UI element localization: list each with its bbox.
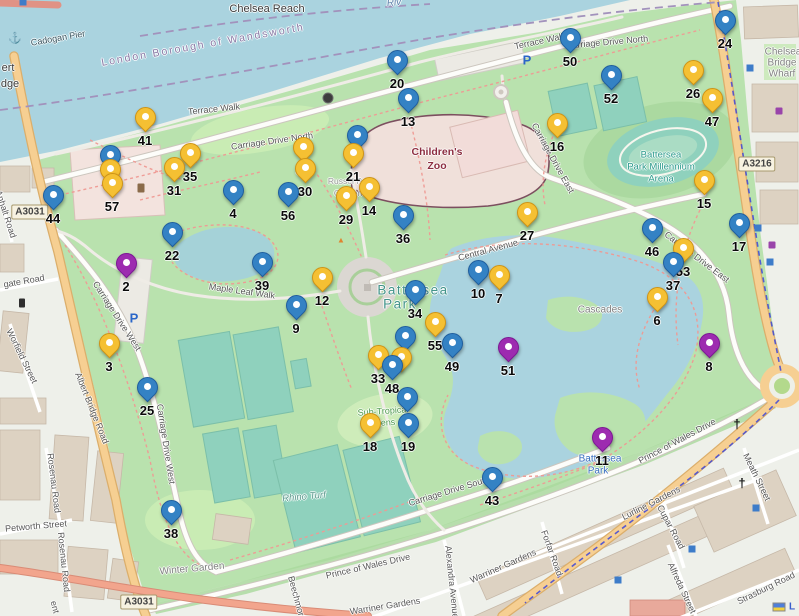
marker-number: 39 xyxy=(255,278,269,293)
marker-number: 34 xyxy=(408,306,422,321)
pin-dot xyxy=(142,113,149,120)
pin-dot xyxy=(449,339,456,346)
pin-dot xyxy=(300,143,307,150)
marker-number: 13 xyxy=(401,114,415,129)
pin-dot xyxy=(412,286,419,293)
pin-dot xyxy=(394,56,401,63)
pin-dot xyxy=(736,219,743,226)
marker-number: 14 xyxy=(362,203,376,218)
pin-dot xyxy=(670,258,677,265)
marker-number: 56 xyxy=(281,208,295,223)
marker-number: 50 xyxy=(563,54,577,69)
pin-dot xyxy=(722,16,729,23)
pin-dot xyxy=(187,149,194,156)
marker-number: 47 xyxy=(705,114,719,129)
pin-dot xyxy=(230,186,237,193)
marker-number: 43 xyxy=(485,493,499,508)
pin-dot xyxy=(285,188,292,195)
marker-number: 24 xyxy=(718,36,732,51)
marker-number: 29 xyxy=(339,212,353,227)
pin-dot xyxy=(354,131,361,138)
marker-number: 11 xyxy=(595,453,609,468)
marker-number: 41 xyxy=(138,133,152,148)
pin-dot xyxy=(259,258,266,265)
pin-dot xyxy=(405,94,412,101)
marker-number: 49 xyxy=(445,359,459,374)
pin-dot xyxy=(706,339,713,346)
marker-number: 52 xyxy=(604,91,618,106)
pin-dot xyxy=(169,228,176,235)
pin-dot xyxy=(709,94,716,101)
pin-dot xyxy=(168,506,175,513)
marker-number: 30 xyxy=(298,184,312,199)
marker-number: 37 xyxy=(666,278,680,293)
marker-number: 10 xyxy=(471,286,485,301)
pin-dot xyxy=(402,332,409,339)
marker-number: 6 xyxy=(653,313,660,328)
marker-number: 4 xyxy=(229,206,236,221)
pin-dot xyxy=(107,151,114,158)
pin-dot xyxy=(319,273,326,280)
pin-dot xyxy=(343,192,350,199)
map-viewport[interactable]: Chelsea ReachCadogan PierLondon Borough … xyxy=(0,0,799,616)
pin-dot xyxy=(432,318,439,325)
pin-dot xyxy=(649,224,656,231)
marker-number: 15 xyxy=(697,196,711,211)
marker-number: 7 xyxy=(495,291,502,306)
marker-number: 25 xyxy=(140,403,154,418)
pin-dot xyxy=(505,343,512,350)
marker-number: 38 xyxy=(164,526,178,541)
pin-dot xyxy=(489,473,496,480)
marker-number: 55 xyxy=(428,338,442,353)
marker-number: 27 xyxy=(520,228,534,243)
marker-number: 51 xyxy=(501,363,515,378)
marker-number: 16 xyxy=(550,139,564,154)
pin-dot xyxy=(144,383,151,390)
pin-dot xyxy=(567,34,574,41)
marker-number: 3 xyxy=(105,359,112,374)
marker-number: 12 xyxy=(315,293,329,308)
marker-number: 22 xyxy=(165,248,179,263)
pin-dot xyxy=(405,419,412,426)
marker-number: 31 xyxy=(167,183,181,198)
pin-dot xyxy=(375,351,382,358)
pin-dot xyxy=(701,176,708,183)
pin-dot xyxy=(123,259,130,266)
pin-dot xyxy=(107,165,114,172)
pin-dot xyxy=(475,266,482,273)
marker-number: 33 xyxy=(371,371,385,386)
marker-number: 35 xyxy=(183,169,197,184)
pin-dot xyxy=(554,119,561,126)
pin-dot xyxy=(171,163,178,170)
pin-dot xyxy=(50,191,57,198)
marker-number: 26 xyxy=(686,86,700,101)
pin-dot xyxy=(293,301,300,308)
pin-dot xyxy=(690,66,697,73)
marker-number: 18 xyxy=(363,439,377,454)
pin-dot xyxy=(389,361,396,368)
marker-number: 21 xyxy=(346,169,360,184)
pin-dot xyxy=(109,179,116,186)
pin-dot xyxy=(496,271,503,278)
pin-dot xyxy=(302,164,309,171)
pin-dot xyxy=(680,244,687,251)
pin-dot xyxy=(400,211,407,218)
marker-number: 46 xyxy=(645,244,659,259)
pin-dot xyxy=(524,208,531,215)
marker-number: 2 xyxy=(122,279,129,294)
marker-number: 9 xyxy=(292,321,299,336)
marker-number: 44 xyxy=(46,211,60,226)
marker-number: 17 xyxy=(732,239,746,254)
pin-dot xyxy=(106,339,113,346)
map-markers-layer: 2574135314443230562129142013365052242647… xyxy=(0,0,799,616)
pin-dot xyxy=(654,293,661,300)
marker-number: 8 xyxy=(705,359,712,374)
pin-dot xyxy=(608,71,615,78)
pin-dot xyxy=(367,419,374,426)
marker-number: 57 xyxy=(105,199,119,214)
pin-dot xyxy=(366,183,373,190)
marker-number: 19 xyxy=(401,439,415,454)
pin-dot xyxy=(350,149,357,156)
marker-number: 36 xyxy=(396,231,410,246)
pin-dot xyxy=(404,393,411,400)
pin-dot xyxy=(599,433,606,440)
